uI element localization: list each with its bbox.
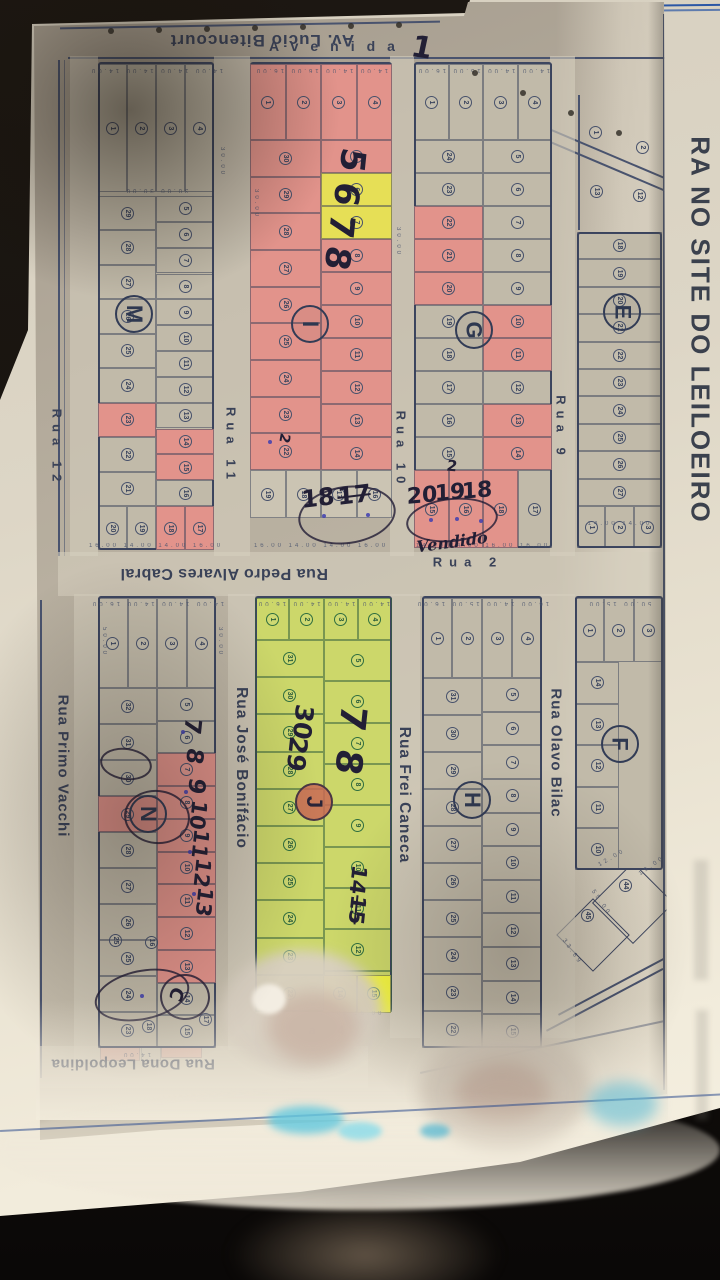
lot-cell: 7 [483,206,552,239]
lot-number: 20 [442,282,455,295]
lot-number-wrap: 1 [589,126,602,139]
lot-number: 13 [350,414,363,427]
lot-number: 1 [583,624,596,637]
lot-number: 9 [511,282,524,295]
lot-number: 26 [279,298,292,311]
lot-cell: 13 [321,404,392,437]
photo-shadow [0,560,320,1080]
out-of-focus-edge [230,1200,500,1280]
block-letter-F: F [601,725,639,763]
lot-cell: 25 [98,334,156,368]
lot-cell: 4 [512,598,542,678]
block-letter-M: M [115,295,153,333]
lot-cell: 23 [98,403,156,437]
lot-number: 18 [164,522,177,535]
lot-cell: 11 [321,338,392,371]
lot-number: 5 [351,654,364,667]
lot-number: 16 [442,414,455,427]
dimension-text: 16.00 14.00 14.00 16.00 [254,543,388,549]
lot-cell: 11 [483,338,552,371]
ink-dot [479,519,483,523]
lot-cell: 1 [414,64,449,140]
lot-number: 25 [121,344,134,357]
lot-cell: 2 [449,64,484,140]
lot-cell: 2 [604,598,633,662]
lot-number: 10 [179,332,192,345]
lot-number: 23 [279,408,292,421]
photographed-auction-plat-map: { "margin": { "vertical_text": "RA NO SI… [0,0,720,1280]
lot-number: 13 [179,409,192,422]
lot-number: 13 [511,414,524,427]
ink-dot [455,517,459,521]
lot-number: 19 [135,522,148,535]
block-letter-glyph: I [297,321,323,327]
dimension-text: 14.00 14.00 15.00 16.00 [416,67,550,73]
lot-cell: 3 [483,64,518,140]
lot-cell: 17 [414,371,483,404]
street-band [550,56,575,556]
lot-cell: 21 [98,472,156,506]
lot-number: 21 [121,482,134,495]
lot-cell: 2 [605,506,633,548]
lot-cell: 16 [156,480,214,506]
photo-shadow [0,0,340,300]
tree-dot [616,130,622,136]
lot-cell: 1 [575,598,604,662]
lot-number: 19 [261,488,274,501]
street-label-rua-9: Rua 9 [554,395,569,460]
auction-margin-text: RA NO SITE DO LEILOEIRO [685,136,716,523]
lot-number: 18 [442,348,455,361]
block-letter-G: G [455,311,493,349]
lot-number: 1 [589,126,602,139]
lot-cell: 8 [483,239,552,272]
lot-cell: 13 [156,403,214,429]
lot-number: 1 [425,96,438,109]
ink-dot [366,513,370,517]
tree-dot [520,90,526,96]
lot-cell: 24 [98,368,156,402]
lot-number: 24 [279,372,292,385]
dimension-text: 16.00 14.00 14.00 16.00 [89,543,223,549]
lot-number: 20 [106,522,119,535]
lot-cell: 22 [414,206,483,239]
lot-number: 22 [442,216,455,229]
lot-number: 13 [590,185,603,198]
lot-number: 12 [179,383,192,396]
lot-number: 11 [179,357,192,370]
lot-number: 19 [613,267,626,280]
lot-number: 4 [521,632,534,645]
dimension-text: 16.00 14.00 15.00 16.00 [415,600,549,606]
lot-number: 30 [446,727,459,740]
lot-number: 24 [121,379,134,392]
lot-number: 3 [494,96,507,109]
lot-number: 14 [511,447,524,460]
lot-cell: 30 [422,715,482,752]
lot-cell: 4 [518,64,553,140]
lot-cell: 22 [98,437,156,471]
lot-cell: 24 [414,140,483,173]
lot-cell: 2 [452,598,482,678]
lot-cell: 5 [482,678,542,712]
block-letter-glyph: E [609,305,635,320]
lot-number-wrap: 13 [590,185,603,198]
bleed-through-smudge [696,1010,708,1120]
dimension-text: 30.00 [395,227,401,257]
lot-cell: 6 [482,712,542,746]
lot-number: 7 [511,216,524,229]
lot-cell: 13 [483,404,552,437]
lot-number: 9 [179,306,192,319]
lot-number: 2 [459,96,472,109]
lot-cell: 15 [156,454,214,480]
lot-cell: 3 [482,598,512,678]
dimension-text: 50.00 15.00 [587,600,652,606]
lot-cell: 10 [321,305,392,338]
lot-number: 5 [511,150,524,163]
lot-cell: 14 [483,437,552,470]
lot-cell: 12 [483,371,552,404]
lot-cell: 14 [575,662,619,704]
lot-cell: 23 [414,173,483,206]
block-letter-glyph: M [121,305,147,323]
lot-cell: 11 [156,351,214,377]
dimension-text: 14.00 14.00 [588,521,653,527]
lot-number: 21 [442,249,455,262]
tree-dot [472,70,478,76]
lot-number: 1 [431,632,444,645]
lot-number: 6 [506,722,519,735]
street-label-rua-12: Rua 12 [50,409,65,488]
lot-number: 17 [193,522,206,535]
lot-number: 14 [350,447,363,460]
lot-number: 3 [491,632,504,645]
lot-number: 14 [179,435,192,448]
lot-number: 26 [613,458,626,471]
lot-cell: 5 [324,640,393,681]
lot-cell: 1 [422,598,452,678]
lot-number: 15 [179,461,192,474]
lot-number: 25 [613,431,626,444]
lot-cell: 14 [321,437,392,470]
lot-cell: 21 [414,239,483,272]
block-letter-glyph: G [461,321,487,338]
block-letter-E: E [603,293,641,331]
lot-number: 7 [351,737,364,750]
street-label-rua-10: Rua 10 [394,411,409,490]
lot-cell: 1 [577,506,605,548]
lot-number-wrap: 12 [633,189,646,202]
lot-number: 23 [613,376,626,389]
lot-number: 9 [350,282,363,295]
lot-cell: 9 [156,299,214,325]
lot-cell: 31 [422,678,482,715]
lot-number: 12 [350,381,363,394]
lot-number: 4 [528,96,541,109]
lot-cell: 17 [518,470,553,548]
lot-number: 5 [506,688,519,701]
block-letter-I: I [291,305,329,343]
lot-number: 6 [511,183,524,196]
lot-cell: 16 [414,404,483,437]
tree-dot [348,23,354,29]
lot-number: 16 [179,487,192,500]
lot-number: 22 [613,349,626,362]
lot-number: 11 [511,348,524,361]
lot-number: 12 [633,189,646,202]
lot-cell: 5 [483,140,552,173]
lot-number: 13 [591,718,604,731]
ink-dot [322,514,326,518]
street-label-rua-11: Rua 11 [224,407,239,485]
lot-number: 19 [442,315,455,328]
photo-shadow [330,760,690,1140]
lot-number: 22 [121,448,134,461]
lot-number: 10 [511,315,524,328]
lot-cell: 23 [250,397,321,434]
lot-number: 3 [334,613,347,626]
lot-cell: 4 [357,64,393,140]
lot-number: 22 [279,445,292,458]
lot-number: 27 [613,486,626,499]
lot-number: 23 [121,413,134,426]
lot-number: 2 [461,632,474,645]
lot-cell: 24 [250,360,321,397]
lot-cell: 19 [250,470,286,518]
lot-number: 25 [279,335,292,348]
ink-dot [429,518,433,522]
lot-number: 4 [368,613,381,626]
lot-number: 18 [613,239,626,252]
block-letter-glyph: F [607,737,633,750]
lot-number: 31 [446,690,459,703]
lot-number: 11 [350,348,363,361]
lot-number: 24 [442,150,455,163]
bleed-through-smudge [694,860,708,980]
lot-number: 4 [368,96,381,109]
lot-number: 8 [511,249,524,262]
lot-cell: 10 [156,325,214,351]
lot-number: 2 [612,624,625,637]
lot-cell: 20 [414,272,483,305]
lot-cell: 12 [321,371,392,404]
lot-number: 17 [442,381,455,394]
lot-cell: 9 [483,272,552,305]
lot-number: 14 [591,676,604,689]
lot-number: 10 [350,315,363,328]
lot-number: 17 [528,503,541,516]
lot-number: 24 [613,404,626,417]
street-label-rua-2: Rua 2 [433,555,503,570]
lot-number: 23 [442,183,455,196]
ink-dot [268,440,272,444]
lot-number: 12 [511,381,524,394]
lot-cell: 6 [483,173,552,206]
tree-dot [568,110,574,116]
lot-cell: 12 [156,377,214,403]
lot-cell: 10 [483,305,552,338]
lot-cell: 14 [156,429,214,455]
tree-dot [396,22,402,28]
